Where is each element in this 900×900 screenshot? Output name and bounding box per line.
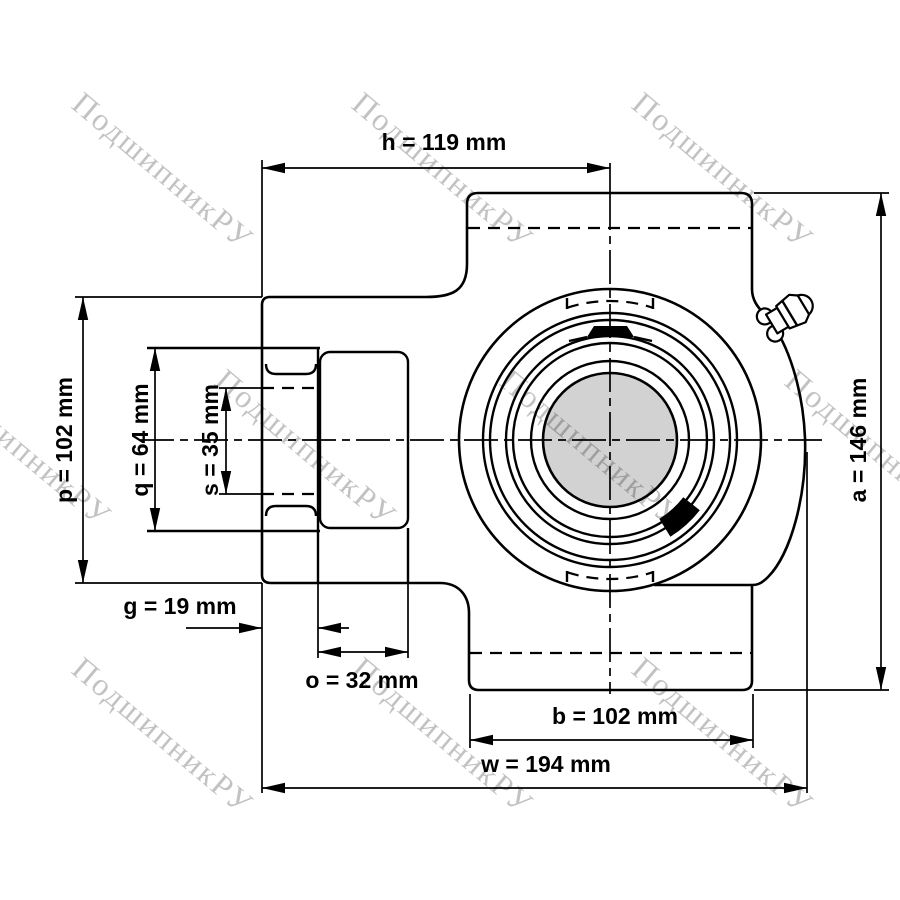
dim-h-label: h = 119 mm <box>382 129 507 155</box>
dim-p-label: p = 102 mm <box>51 377 77 503</box>
dim-g-label: g = 19 mm <box>123 593 236 619</box>
watermark-text: ПодшипникРУ <box>66 650 261 822</box>
dim-b-label: b = 102 mm <box>552 703 678 729</box>
arrowhead <box>318 647 341 657</box>
slide-tongue-group <box>147 348 408 582</box>
arrowhead <box>239 623 262 633</box>
arrowhead <box>876 193 886 216</box>
dim-q-label: q = 64 mm <box>127 383 153 496</box>
arrowhead <box>318 623 341 633</box>
arrowhead <box>78 297 88 320</box>
arrowhead <box>150 508 160 531</box>
dim-w-label: w = 194 mm <box>480 751 611 777</box>
housing-outline <box>262 193 805 690</box>
dim-a-label: a = 146 mm <box>845 378 871 503</box>
arrowhead <box>262 783 285 793</box>
housing-outline-group <box>262 193 805 690</box>
watermark-text: ПодшипникРУ <box>626 85 821 257</box>
watermark-text: ПодшипникРУ <box>626 650 821 822</box>
drawing-page: ПодшипникРУПодшипникРУПодшипникРУПодшипн… <box>0 0 900 900</box>
tongue-upper-groove <box>266 364 316 374</box>
arrowhead <box>150 348 160 371</box>
dimension-labels: h = 119 mm g = 19 mm o = 32 mm b = 102 m… <box>51 129 871 777</box>
watermark-text: ПодшипникРУ <box>66 85 261 257</box>
dim-s-label: s = 35 mm <box>197 384 223 496</box>
arrowhead <box>78 560 88 583</box>
arrowhead <box>262 163 285 173</box>
dim-o-label: o = 32 mm <box>305 667 418 693</box>
grease-fitting <box>754 285 821 345</box>
tongue-lower-groove <box>266 506 316 516</box>
watermark-text: ПодшипникРУ <box>346 85 541 257</box>
arrowhead <box>385 647 408 657</box>
arrowhead <box>876 667 886 690</box>
technical-drawing: ПодшипникРУПодшипникРУПодшипникРУПодшипн… <box>0 0 900 900</box>
arrowhead <box>587 163 610 173</box>
